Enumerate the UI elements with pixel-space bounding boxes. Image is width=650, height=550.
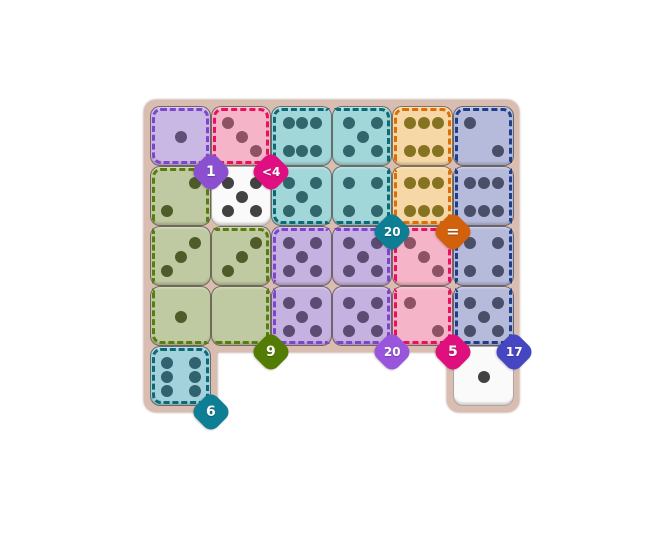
die-r2c0[interactable] [150, 226, 211, 286]
die-r1c4[interactable] [392, 166, 453, 226]
die-pip [432, 117, 444, 129]
die-pip [418, 177, 430, 189]
die-pip [357, 311, 369, 323]
die-pip [189, 385, 201, 397]
die-pip [310, 297, 322, 309]
region-outline [213, 228, 270, 284]
die-pip [283, 117, 295, 129]
die-pip [371, 117, 383, 129]
die-r0c5[interactable] [453, 106, 514, 166]
die-pip [161, 357, 173, 369]
region-outline [152, 108, 209, 164]
die-pip [236, 131, 248, 143]
die-r3c4[interactable] [392, 286, 453, 346]
die-pip [464, 325, 476, 337]
die-pip [189, 371, 201, 383]
region-outline [455, 288, 512, 344]
die-pip [283, 297, 295, 309]
die-pip [432, 265, 444, 277]
die-r1c5[interactable] [453, 166, 514, 226]
region-outline [334, 168, 391, 224]
die-pip [310, 265, 322, 277]
die-pip [418, 117, 430, 129]
die-pip [357, 131, 369, 143]
die-pip [250, 205, 262, 217]
die-pip [492, 297, 504, 309]
die-pip [250, 237, 262, 249]
clue-badge-label: 20 [384, 226, 401, 238]
clue-badge-label: 20 [384, 346, 401, 358]
die-pip [283, 205, 295, 217]
die-pip [371, 145, 383, 157]
die-r3c5[interactable] [453, 286, 514, 346]
die-pip [492, 265, 504, 277]
die-pip [492, 177, 504, 189]
region-outline [273, 228, 330, 284]
region-outline [152, 288, 209, 344]
die-pip [404, 145, 416, 157]
die-r2c2[interactable] [271, 226, 332, 286]
region-outline [394, 108, 451, 164]
die-pip [161, 265, 173, 277]
die-pip [478, 311, 490, 323]
region-outline [152, 228, 209, 284]
die-pip [175, 251, 187, 263]
die-pip [371, 265, 383, 277]
die-pip [283, 145, 295, 157]
die-pip [283, 325, 295, 337]
die-pip [464, 265, 476, 277]
die-pip [343, 265, 355, 277]
die-pip [371, 325, 383, 337]
die-pip [432, 145, 444, 157]
die-pip [343, 297, 355, 309]
die-r3c0[interactable] [150, 286, 211, 346]
die-pip [296, 145, 308, 157]
die-pip [418, 251, 430, 263]
die-pip [404, 205, 416, 217]
die-pip [250, 145, 262, 157]
die-pip [236, 191, 248, 203]
die-pip [310, 117, 322, 129]
region-outline [213, 288, 270, 344]
die-pip [222, 117, 234, 129]
die-r0c1[interactable] [211, 106, 272, 166]
die-pip [161, 385, 173, 397]
die-pip [310, 205, 322, 217]
die-pip [296, 311, 308, 323]
die-pip [492, 325, 504, 337]
die-pip [222, 205, 234, 217]
puzzle-board: 1<420=9205176 [0, 0, 650, 550]
die-r0c2[interactable] [271, 106, 332, 166]
clue-badge-label: 17 [505, 346, 522, 358]
die-r3c1[interactable] [211, 286, 272, 346]
die-pip [343, 205, 355, 217]
die-r3c2[interactable] [271, 286, 332, 346]
die-r2c1[interactable] [211, 226, 272, 286]
die-pip [432, 325, 444, 337]
die-pip [161, 205, 173, 217]
die-pip [418, 145, 430, 157]
die-r4c0[interactable] [150, 346, 211, 406]
die-pip [404, 297, 416, 309]
die-pip [343, 177, 355, 189]
region-outline [213, 108, 270, 164]
region-outline [334, 288, 391, 344]
die-pip [371, 297, 383, 309]
die-pip [478, 205, 490, 217]
die-pip [464, 297, 476, 309]
die-pip [464, 177, 476, 189]
die-pip [343, 237, 355, 249]
die-pip [283, 265, 295, 277]
clue-badge-label: 5 [448, 345, 458, 359]
region-outline [152, 348, 209, 404]
region-outline [394, 168, 451, 224]
die-pip [161, 371, 173, 383]
die-pip [404, 177, 416, 189]
clue-badge-label: <4 [262, 166, 280, 178]
die-pip [404, 117, 416, 129]
clue-badge-label: 1 [206, 165, 216, 179]
clue-badge-label: 9 [266, 345, 276, 359]
die-pip [175, 311, 187, 323]
die-pip [492, 237, 504, 249]
die-pip [310, 145, 322, 157]
die-pip [222, 265, 234, 277]
die-pip [432, 205, 444, 217]
die-pip [283, 237, 295, 249]
die-r1c3[interactable] [332, 166, 393, 226]
die-r0c3[interactable] [332, 106, 393, 166]
clue-badge-label: 6 [206, 405, 216, 419]
die-pip [478, 177, 490, 189]
die-pip [175, 131, 187, 143]
region-outline [273, 108, 330, 164]
die-pip [310, 325, 322, 337]
die-pip [432, 177, 444, 189]
die-pip [343, 325, 355, 337]
die-r0c4[interactable] [392, 106, 453, 166]
die-pip [189, 357, 201, 369]
die-pip [296, 117, 308, 129]
die-r0c0[interactable] [150, 106, 211, 166]
die-pip [492, 145, 504, 157]
region-outline [273, 288, 330, 344]
die-pip [357, 251, 369, 263]
die-pip [418, 205, 430, 217]
die-pip [492, 205, 504, 217]
die-pip [310, 237, 322, 249]
die-pip [343, 117, 355, 129]
die-pip [296, 191, 308, 203]
die-pip [371, 177, 383, 189]
clue-badge-label: = [446, 224, 459, 240]
die-pip [343, 145, 355, 157]
die-pip [310, 177, 322, 189]
die-pip [478, 371, 490, 383]
die-pip [189, 237, 201, 249]
die-r3c3[interactable] [332, 286, 393, 346]
die-pip [236, 251, 248, 263]
die-pip [371, 205, 383, 217]
die-pip [296, 251, 308, 263]
region-outline [334, 108, 391, 164]
region-outline [455, 108, 512, 164]
die-pip [464, 117, 476, 129]
die-pip [464, 205, 476, 217]
region-outline [455, 168, 512, 224]
region-outline [394, 288, 451, 344]
